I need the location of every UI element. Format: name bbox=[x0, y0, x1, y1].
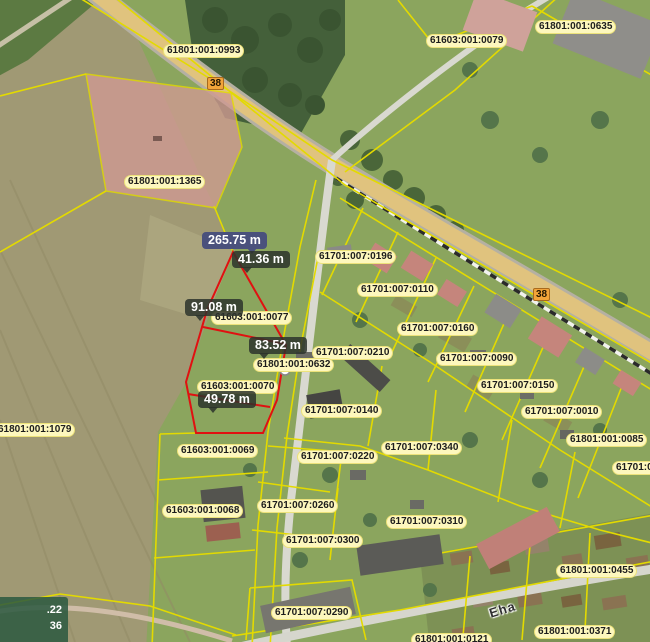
cadastral-label: 61701:007:0290 bbox=[271, 606, 352, 620]
measurement-label: 83.52 m bbox=[249, 337, 307, 354]
street-name-label: Eha bbox=[487, 598, 517, 620]
cadastral-label: 61801:001:0632 bbox=[253, 358, 334, 372]
cadastral-label: 61701:007:0300 bbox=[282, 534, 363, 548]
coordinate-line-2: 36 bbox=[0, 618, 62, 634]
cadastral-label: 61801:001:0371 bbox=[534, 625, 615, 639]
cadastral-label: 61701:007:0110 bbox=[357, 283, 438, 297]
coordinate-readout: .22 36 bbox=[0, 597, 68, 642]
road-number-badge: 38 bbox=[207, 77, 224, 90]
measurement-label: 91.08 m bbox=[185, 299, 243, 316]
cadastral-label: 61701:007:0340 bbox=[381, 441, 462, 455]
measurement-label: 265.75 m bbox=[202, 232, 267, 249]
cadastral-label: 61801:001:0993 bbox=[163, 44, 244, 58]
map-viewport[interactable]: 61801:001:099361603:001:007961801:001:06… bbox=[0, 0, 650, 642]
road-number-badge: 38 bbox=[533, 288, 550, 301]
cadastral-label: 61701:00 bbox=[612, 461, 650, 475]
cadastral-label: 61701:007:0220 bbox=[297, 450, 378, 464]
measurement-label: 41.36 m bbox=[232, 251, 290, 268]
coordinate-line-1: .22 bbox=[0, 602, 62, 618]
cadastral-label: 61701:007:0310 bbox=[386, 515, 467, 529]
label-layer: 61801:001:099361603:001:007961801:001:06… bbox=[0, 0, 650, 642]
cadastral-label: 61801:001:1365 bbox=[124, 175, 205, 189]
cadastral-label: 61701:007:0010 bbox=[521, 405, 602, 419]
cadastral-label: 61801:001:1079 bbox=[0, 423, 75, 437]
cadastral-label: 61801:001:0635 bbox=[535, 20, 616, 34]
cadastral-label: 61701:007:0196 bbox=[315, 250, 396, 264]
cadastral-label: 61801:001:0085 bbox=[566, 433, 647, 447]
cadastral-label: 61701:007:0160 bbox=[397, 322, 478, 336]
cadastral-label: 61701:007:0150 bbox=[477, 379, 558, 393]
cadastral-label: 61701:007:0260 bbox=[257, 499, 338, 513]
cadastral-label: 61603:001:0079 bbox=[426, 34, 507, 48]
cadastral-label: 61701:007:0090 bbox=[436, 352, 517, 366]
cadastral-label: 61603:001:0069 bbox=[177, 444, 258, 458]
cadastral-label: 61801:001:0121 bbox=[411, 633, 492, 642]
cadastral-label: 61701:007:0140 bbox=[301, 404, 382, 418]
cadastral-label: 61603:001:0068 bbox=[162, 504, 243, 518]
measurement-label: 49.78 m bbox=[198, 391, 256, 408]
cadastral-label: 61801:001:0455 bbox=[556, 564, 637, 578]
